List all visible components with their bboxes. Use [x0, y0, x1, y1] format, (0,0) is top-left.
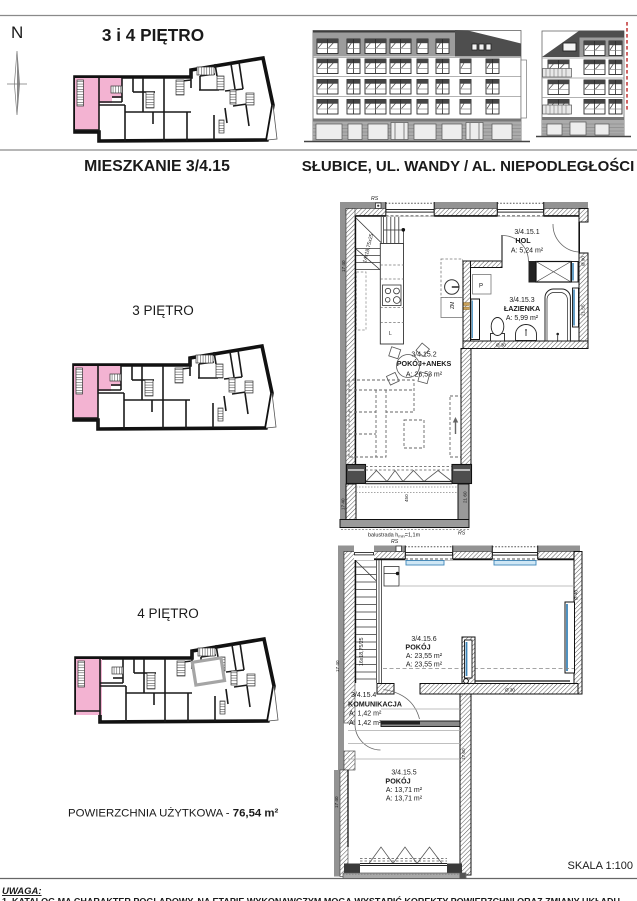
svg-text:N: N [11, 23, 23, 42]
svg-text:POWIERZCHNIA UŻYTKOWA - 76,54: POWIERZCHNIA UŻYTKOWA - 76,54 m² [68, 807, 279, 820]
svg-text:L: L [389, 331, 392, 337]
svg-text:POKÓJ: POKÓJ [385, 777, 410, 786]
svg-text:21 60: 21 60 [463, 491, 468, 503]
svg-text:A: 1,42 m²: A: 1,42 m² [349, 711, 382, 718]
svg-text:balustrada hmin=1,1m: balustrada hmin=1,1m [368, 533, 421, 539]
svg-text:A: 23,55 m²: A: 23,55 m² [406, 653, 443, 660]
svg-text:SŁUBICE, UL. WANDY / AL. NIEPO: SŁUBICE, UL. WANDY / AL. NIEPODLEGŁOŚCI [302, 157, 635, 175]
svg-text:MIESZKANIE 3/4.15: MIESZKANIE 3/4.15 [84, 158, 230, 175]
svg-text:POKÓJ: POKÓJ [405, 643, 430, 652]
svg-text:3/4.15.1: 3/4.15.1 [514, 229, 539, 236]
svg-text:17 40: 17 40 [335, 660, 340, 672]
svg-text:RS: RS [391, 539, 399, 545]
svg-text:POKÓJ+ANEKS: POKÓJ+ANEKS [397, 359, 452, 368]
svg-text:RS: RS [371, 196, 379, 202]
svg-text:UWAGA:: UWAGA: [2, 886, 42, 897]
svg-text:3 i 4 PIĘTRO: 3 i 4 PIĘTRO [102, 25, 204, 45]
svg-text:A: 23,55 m²: A: 23,55 m² [406, 662, 443, 669]
svg-text:17 60: 17 60 [461, 748, 466, 760]
svg-text:Ø 40: Ø 40 [574, 590, 579, 600]
svg-text:16x18,75/25: 16x18,75/25 [359, 637, 365, 666]
svg-text:4 PIĘTRO: 4 PIĘTRO [137, 606, 199, 621]
svg-text:SKALA 1:100: SKALA 1:100 [568, 860, 633, 872]
svg-text:Ø 90: Ø 90 [581, 256, 586, 266]
svg-text:A: 13,71 m²: A: 13,71 m² [386, 787, 423, 794]
svg-text:21 55: 21 55 [581, 304, 586, 316]
svg-text:A: 5,99 m²: A: 5,99 m² [506, 315, 539, 322]
svg-text:1. KATALOG MA CHARAKTER POGLĄD: 1. KATALOG MA CHARAKTER POGLĄDOWY. NA ET… [2, 896, 620, 901]
svg-text:3 PIĘTRO: 3 PIĘTRO [132, 303, 194, 318]
svg-text:A: 13,71 m²: A: 13,71 m² [386, 796, 423, 803]
svg-text:450: 450 [404, 494, 409, 502]
svg-text:17 40: 17 40 [341, 260, 346, 272]
svg-text:ZM: ZM [450, 302, 456, 310]
svg-text:A: 26,53 m²: A: 26,53 m² [406, 372, 443, 379]
svg-text:KOMUNIKACJA: KOMUNIKACJA [348, 700, 402, 709]
svg-text:P: P [479, 284, 483, 290]
svg-text:Ø 30: Ø 30 [505, 688, 515, 693]
svg-text:3/4.15.4: 3/4.15.4 [351, 692, 376, 699]
svg-text:RS: RS [458, 531, 466, 537]
svg-text:HOL: HOL [515, 236, 531, 245]
svg-text:3/4.15.3: 3/4.15.3 [509, 297, 534, 304]
svg-text:ŁAZIENKA: ŁAZIENKA [504, 304, 540, 313]
svg-text:A: 5,24 m²: A: 5,24 m² [511, 248, 544, 255]
svg-text:3/4.15.5: 3/4.15.5 [391, 770, 416, 777]
svg-text:Ø 30: Ø 30 [496, 343, 506, 348]
svg-text:17 40: 17 40 [334, 796, 339, 808]
svg-text:A: 1,42 m²: A: 1,42 m² [349, 720, 382, 727]
svg-text:17 40: 17 40 [341, 498, 346, 510]
